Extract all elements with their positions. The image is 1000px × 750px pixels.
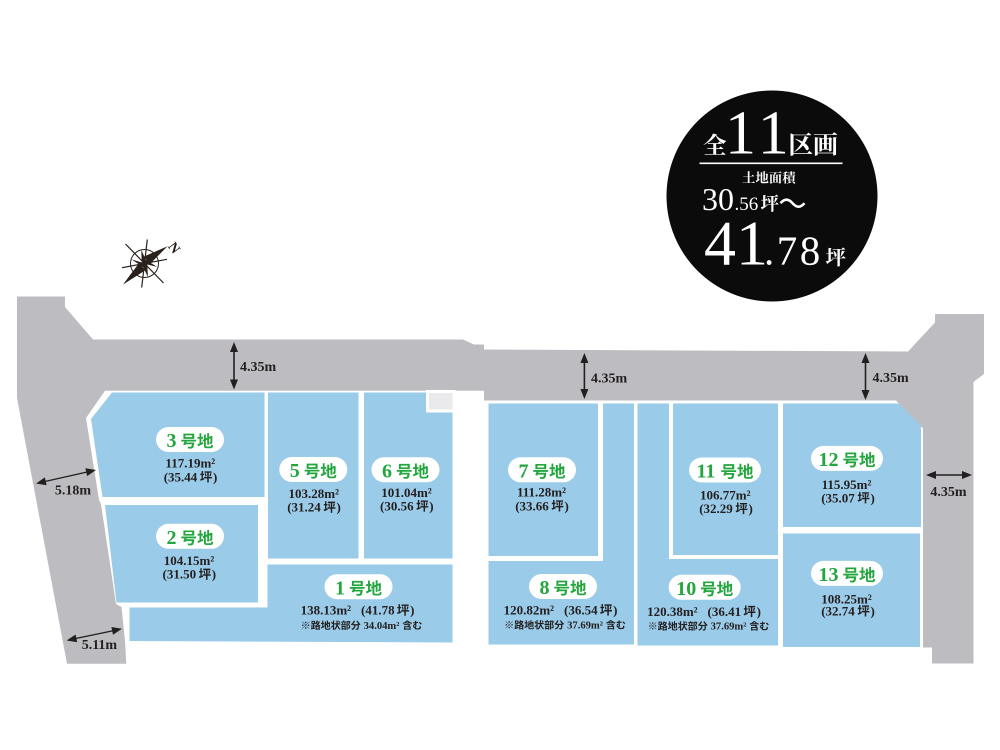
svg-text:1: 1 <box>335 577 345 599</box>
svg-text:(33.66: (33.66 <box>515 498 549 513</box>
svg-text:120.82m²: 120.82m² <box>504 603 555 618</box>
svg-text:): ) <box>613 603 617 618</box>
svg-text:): ) <box>213 469 217 484</box>
svg-text:34.04m²: 34.04m² <box>364 621 400 632</box>
svg-text:37.69m²: 37.69m² <box>711 622 747 633</box>
svg-text:(35.44: (35.44 <box>164 469 198 484</box>
svg-text:6: 6 <box>382 460 392 482</box>
svg-text:): ) <box>871 603 875 618</box>
svg-text:4.35m: 4.35m <box>930 485 967 500</box>
svg-text:(36.54: (36.54 <box>564 603 598 618</box>
svg-text:): ) <box>212 567 216 582</box>
svg-text:): ) <box>565 498 569 513</box>
svg-text:(30.56: (30.56 <box>380 499 414 514</box>
svg-text:(31.50: (31.50 <box>163 567 197 582</box>
svg-text:2: 2 <box>167 527 177 549</box>
svg-text:3: 3 <box>167 430 177 452</box>
svg-text:): ) <box>337 500 341 515</box>
svg-text:(41.78: (41.78 <box>361 603 395 618</box>
svg-text:): ) <box>429 499 433 514</box>
svg-text:4.35m: 4.35m <box>591 372 628 387</box>
svg-text:4.35m: 4.35m <box>873 371 910 386</box>
svg-text:8: 8 <box>540 577 550 599</box>
svg-text:5.18m: 5.18m <box>55 484 92 499</box>
svg-text:): ) <box>757 604 761 619</box>
svg-text:37.69m²: 37.69m² <box>567 621 603 632</box>
svg-text:10: 10 <box>676 578 696 600</box>
svg-text:12: 12 <box>819 449 839 471</box>
svg-text:13: 13 <box>819 564 839 586</box>
svg-text:(31.24: (31.24 <box>287 500 321 515</box>
svg-text:7: 7 <box>519 460 529 482</box>
svg-text:5.11m: 5.11m <box>82 638 118 653</box>
svg-text:): ) <box>871 490 875 505</box>
svg-text:11: 11 <box>697 461 716 483</box>
svg-text:): ) <box>749 501 753 516</box>
svg-text:.78: .78 <box>764 228 823 274</box>
svg-text:(36.41: (36.41 <box>708 604 742 619</box>
svg-text:11: 11 <box>725 100 793 168</box>
svg-text:(32.29: (32.29 <box>699 501 733 516</box>
svg-text:): ) <box>410 603 414 618</box>
svg-text:(35.07: (35.07 <box>821 490 855 505</box>
svg-text:41: 41 <box>704 208 768 279</box>
svg-text:4.35m: 4.35m <box>240 360 277 375</box>
svg-text:138.13m²: 138.13m² <box>301 603 352 618</box>
svg-text:5: 5 <box>290 460 300 482</box>
svg-text:120.38m²: 120.38m² <box>647 604 698 619</box>
svg-text:(32.74: (32.74 <box>821 603 855 618</box>
